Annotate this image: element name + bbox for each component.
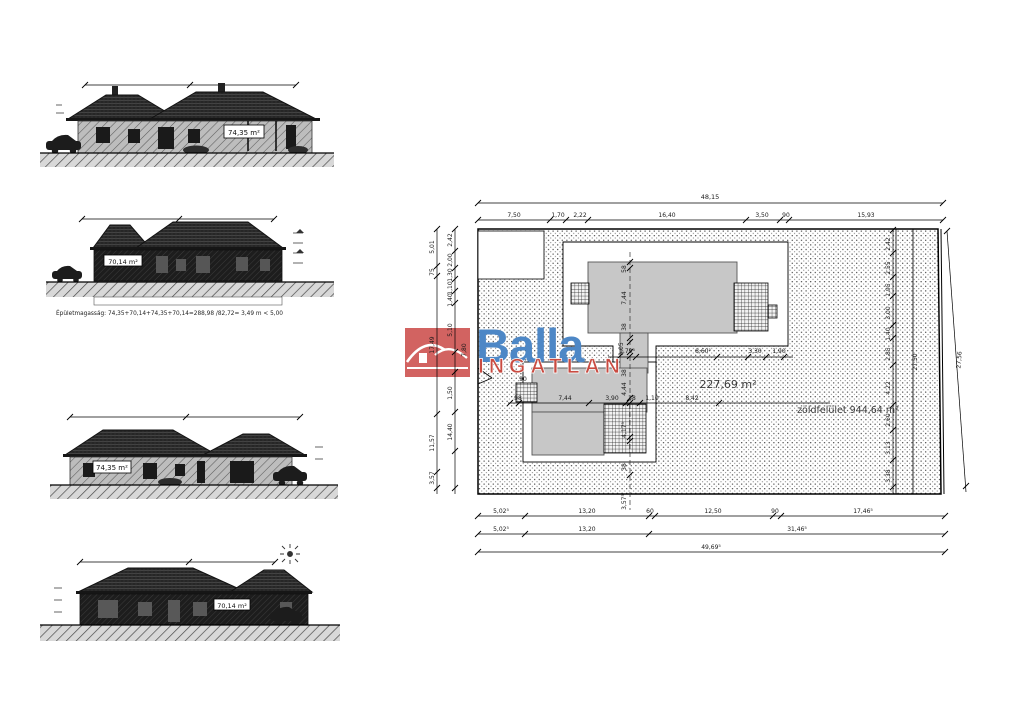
dim-label: 3,90 (605, 395, 619, 402)
dim-label: 1,90 (772, 348, 786, 355)
dim-label: 1,40 (885, 327, 892, 341)
dim-label: 7,44 (558, 395, 572, 402)
dim-label: 1,10 (645, 395, 659, 402)
dim-label: 58 (621, 265, 628, 273)
dim-label: 1,30 (447, 268, 454, 282)
dim-label: 49,69⁵ (701, 544, 721, 551)
dim-label: 14,40 (447, 423, 454, 440)
roof (230, 570, 312, 592)
dim-label: 13,20 (578, 508, 595, 515)
dim-label: 1,50 (447, 386, 454, 400)
dim-label: 48,15 (701, 193, 720, 201)
terrace (734, 283, 768, 331)
dim-label: 1,40 (447, 293, 454, 307)
dim-label: 38 (621, 323, 628, 331)
dim-label: 12,50 (704, 508, 721, 515)
dim-label: 5,02⁵ (493, 508, 509, 515)
dim-label: 8,60⁵ (695, 348, 711, 355)
dim-label: 7,80 (461, 343, 468, 357)
dim-label: 8,42 (685, 395, 699, 402)
facade-area-label: 74,35 m² (96, 464, 128, 472)
roof (136, 222, 283, 248)
dim-label: 3,00 (885, 306, 892, 320)
facade-area-label: 74,35 m² (228, 129, 260, 137)
terrace-step (768, 305, 777, 318)
ground (50, 485, 338, 499)
dim-label: 2,22 (573, 212, 587, 219)
dim-label: 3,38 (885, 469, 892, 483)
dim-label: 1,79⁵ (619, 348, 635, 355)
building-area-label: 227,69 m² (699, 378, 756, 391)
elevation-drawing-1: 74,35 m² (38, 55, 338, 173)
dim-label: 3,13 (885, 441, 892, 455)
dim-label: 13,20 (578, 526, 595, 533)
dim-label: 3,50 (755, 212, 769, 219)
building-upper-block (588, 262, 737, 333)
ground (40, 625, 340, 641)
dim-label: 90 (771, 508, 779, 515)
roof (78, 568, 246, 592)
dim-label: 5,10 (447, 323, 454, 337)
dim-label: 4,17⁵ (621, 422, 628, 438)
level-marks (293, 233, 303, 263)
car (46, 135, 81, 154)
building-height-note: Épületmagasság: 74,35+70,14+74,35+70,14=… (56, 309, 283, 317)
elevation-drawing-4: 70,14 m² (38, 540, 350, 652)
parcel-boundary-double-line (941, 229, 944, 494)
dim-label: 7,44 (621, 291, 628, 305)
dim-label: 38 (628, 395, 636, 402)
dim-label: 3,57⁵ (621, 494, 628, 510)
dim-label: 38 (621, 463, 628, 471)
dim-label: 15,93 (857, 212, 874, 219)
dim-label: 4,22 (885, 381, 892, 395)
roof (65, 430, 217, 455)
driveway-cutout (478, 231, 544, 279)
dim-label: 7,50 (507, 212, 521, 219)
elevation-drawing-2: 70,14 m² Épületmagasság: 74,35+70,14+74,… (38, 193, 350, 325)
dim-label: 17,46⁵ (853, 508, 873, 515)
dim-label: 1,10 (447, 281, 454, 295)
dim-label: 16,40 (658, 212, 675, 219)
dim-label: 31,46⁵ (787, 526, 807, 533)
car (52, 266, 82, 283)
dim-label: 5,02⁵ (493, 526, 509, 533)
dim-label: 2,42 (447, 233, 454, 247)
facade-area-label: 70,14 m² (217, 602, 247, 610)
dim-label: 98 (514, 395, 522, 402)
roof (203, 434, 305, 455)
elevation-drawing-3: 74,35 m² (45, 402, 345, 507)
dim-label: 3,30 (748, 348, 762, 355)
dim-label: 2,42 (885, 237, 892, 251)
dim-label: 60 (646, 508, 654, 515)
architectural-drawing-sheet: 48,15 7,50 1,70 2,22 16,40 3,50 90 15,93… (0, 0, 1023, 704)
roof (150, 92, 316, 119)
dim-label: 27,50 (912, 353, 919, 370)
dim-label: 2,00 (447, 253, 454, 267)
dim-label: 4,44 (621, 382, 628, 396)
dim-label: 5,01 (429, 240, 436, 254)
ground (46, 282, 334, 297)
logo-subtitle-text: INGATLAN (478, 355, 625, 379)
dim-label: 1,95 (885, 283, 892, 297)
dim-label: 90 (782, 212, 790, 219)
dim-label: 2,55 (885, 261, 892, 275)
dim-label: 11,57 (429, 434, 436, 451)
terrace (571, 283, 589, 304)
sun-icon (280, 544, 300, 564)
building-lower-block (532, 412, 604, 455)
dim-label: 3,57 (429, 471, 436, 485)
level-marks (54, 588, 62, 612)
dim-label: 75 (429, 268, 436, 276)
green-area-label: zöldfelület 944,64 m² (797, 405, 899, 416)
dim-label: 2,85 (885, 347, 892, 361)
facade-area-label: 70,14 m² (108, 258, 138, 266)
dim-label: 1,70 (551, 212, 565, 219)
dim-label: 17,49 (429, 336, 436, 353)
ground (40, 153, 334, 167)
dim-label: 27,56 (955, 351, 963, 369)
